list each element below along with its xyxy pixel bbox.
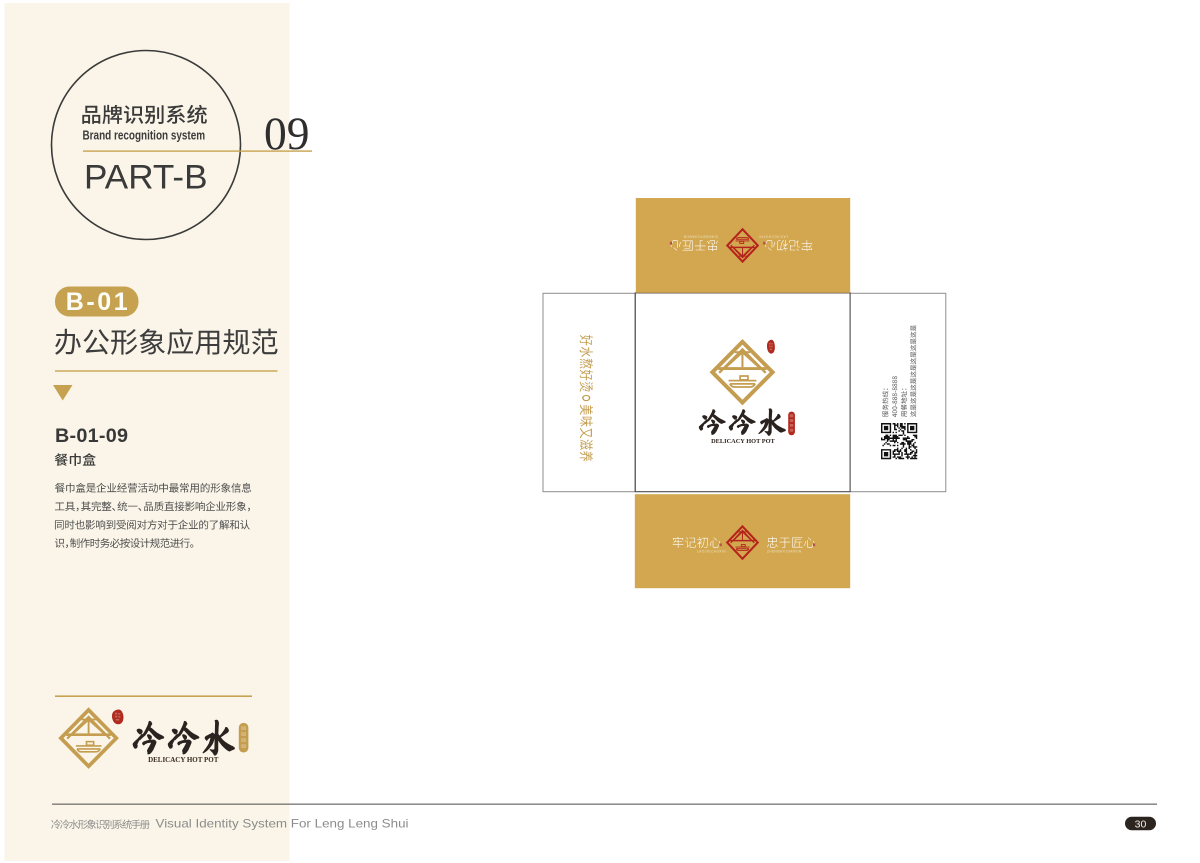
svg-text:ZHENGBYUJIANXIN: ZHENGBYUJIANXIN xyxy=(767,550,802,554)
svg-text:Brand recognition system: Brand recognition system xyxy=(83,128,206,143)
svg-text:ZHENGBYUJIANXIN: ZHENGBYUJIANXIN xyxy=(683,234,718,238)
svg-text:09: 09 xyxy=(264,108,310,160)
svg-text:B-01-09: B-01-09 xyxy=(55,425,128,447)
svg-text:DELICACY HOT POT: DELICACY HOT POT xyxy=(711,438,775,445)
svg-text:B-01: B-01 xyxy=(66,288,128,316)
svg-text:LAOJIECHUXIN: LAOJIECHUXIN xyxy=(759,234,788,238)
svg-text:PART-B: PART-B xyxy=(84,159,208,197)
svg-text:DELICACY HOT POT: DELICACY HOT POT xyxy=(148,755,218,764)
svg-text:LAOJIECHUXIN: LAOJIECHUXIN xyxy=(697,550,726,554)
svg-text:Visual Identity System For Len: Visual Identity System For Leng Leng Shu… xyxy=(156,818,409,831)
svg-text:30: 30 xyxy=(1135,818,1147,830)
